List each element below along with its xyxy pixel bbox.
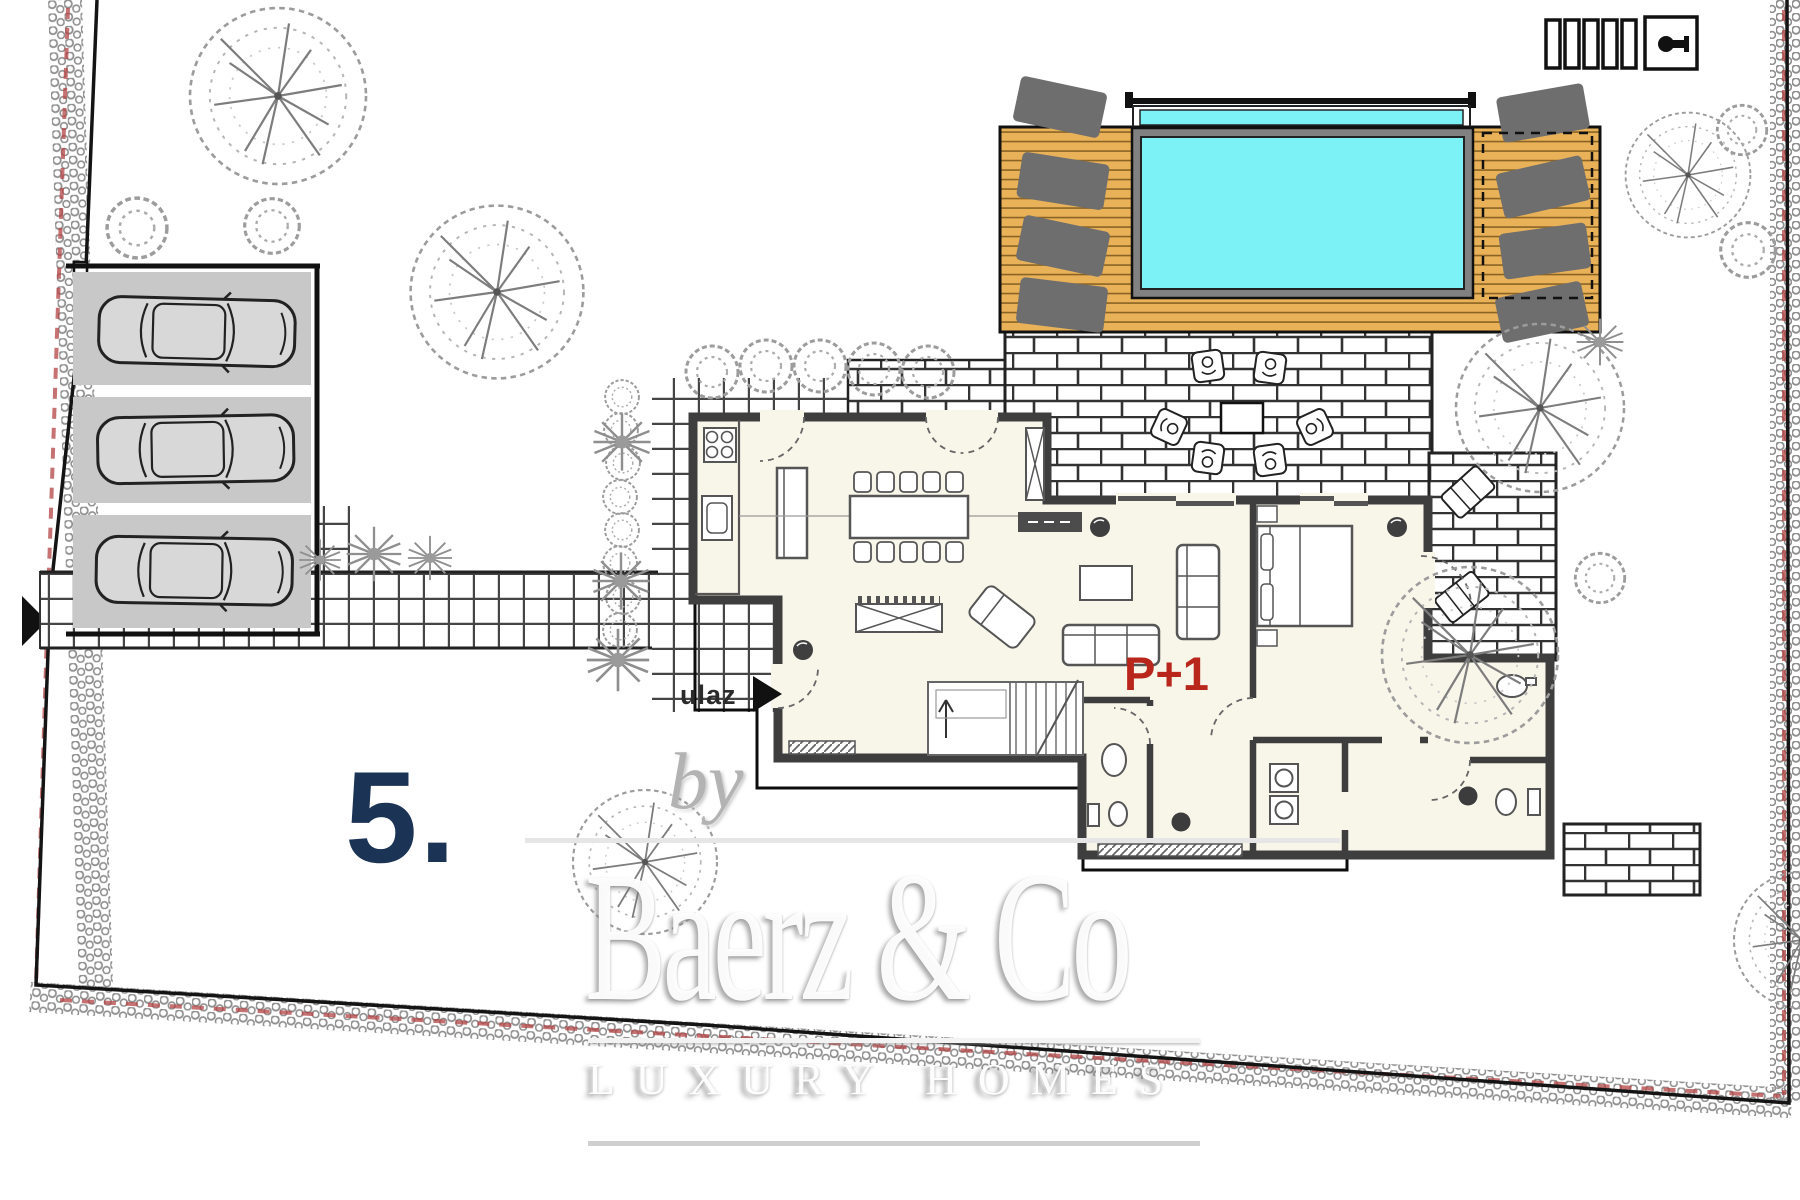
watermark-by: by [668,742,744,822]
watermark-tagline: LUXURY HOMES [588,1058,1184,1102]
floor-drain [1459,787,1478,806]
floor-label: P+1 [1124,650,1209,697]
entrance-label: ulaz [680,682,737,709]
toilet [1109,802,1127,826]
kitchen-island [777,468,807,558]
tree [190,8,366,184]
tree [411,206,584,379]
coffee-table [1080,566,1132,600]
bush [107,198,167,258]
pool-water [1141,137,1464,289]
car [96,529,293,612]
scale-bar [1546,17,1697,69]
car [97,408,294,491]
bedroom [1257,506,1352,646]
parking-area [66,266,320,634]
watermark-brand: Baerz & Co [585,845,1129,1030]
tree [1626,113,1751,238]
watermark-divider-bottom [588,1141,1200,1146]
nightstand [1257,506,1277,522]
bathroom-sink [1102,744,1126,776]
bush [1721,223,1776,278]
pool-overflow-channel [1140,110,1463,125]
nightstand [1257,630,1277,646]
floor-drain [1172,813,1191,832]
car [98,289,296,374]
swimming-pool [1125,92,1476,298]
site-plan-page: ulaz P+1 5. by Baerz & Co LUXURY HOMES [0,0,1800,1200]
bush [1575,553,1624,602]
dining-table [850,496,968,538]
pool-deck [1000,75,1600,343]
staircase [928,680,1083,757]
sofa-vertical [1177,545,1219,639]
bush [1717,105,1766,154]
bush [245,199,300,254]
toilet [1496,789,1516,815]
unit-number: 5. [345,752,457,882]
patio-table [1221,403,1263,433]
